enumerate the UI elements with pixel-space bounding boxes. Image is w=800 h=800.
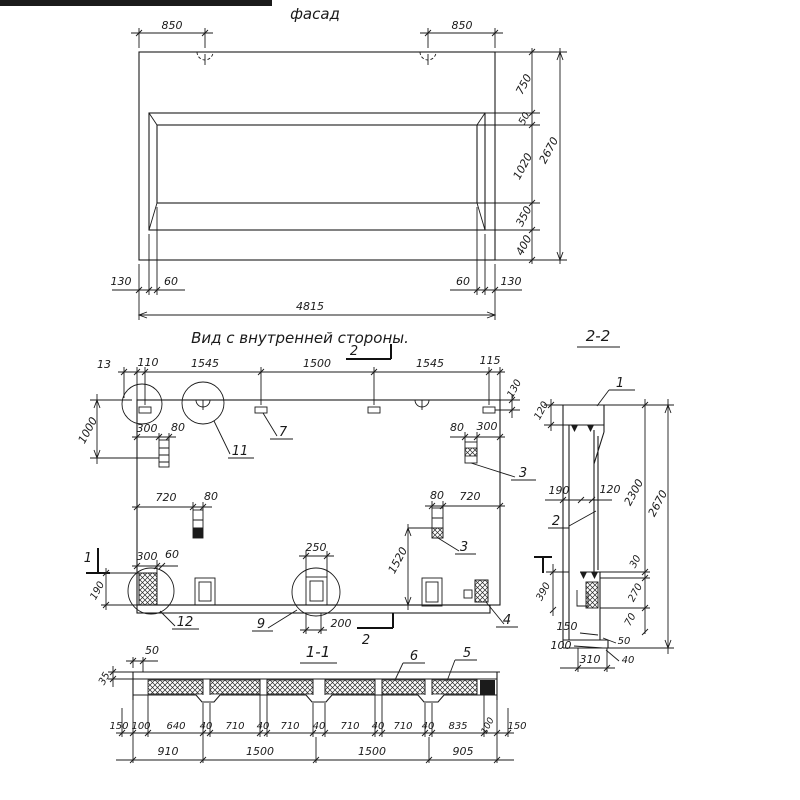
dim-row1-12: 835 [448,721,467,732]
dim-130-left: 130 [111,275,132,288]
dim-80-mid: 80 [204,490,218,503]
section-2-mark-bottom [357,613,393,628]
slot-4 [483,407,495,413]
callout-12: 12 [177,615,194,630]
dim-80-tr: 80 [450,421,464,434]
dim-130-inner: 130 [505,378,524,400]
dim-13: 13 [97,358,111,371]
dim-70: 70 [623,612,639,628]
dim-270: 270 [626,582,645,604]
dim-2670-sec: 2670 [646,488,671,519]
facade-title: фасад [290,5,340,23]
dim-line-2670 [557,48,563,264]
dim-row1-10: 710 [393,721,412,732]
facade-view: фасад 850 850 750 50 1020 350 400 2670 1… [111,5,568,320]
dim-200: 200 [331,617,352,630]
dim-115: 115 [480,354,501,367]
dim-row2-1: 1500 [246,745,274,758]
dim-line-50 [126,657,158,672]
dim-300-tr: 300 [477,420,498,433]
dim-line-1520 [405,524,434,610]
dim-120-top: 120 [532,400,551,422]
dim-line-190 [101,568,139,610]
dim-850-left: 850 [162,19,183,32]
dim-130-right: 130 [501,275,522,288]
callout-9: 9 [257,617,265,632]
insulation-block [210,680,260,694]
inner-view: Вид с внутренней стороны. 13 110 1545 15… [76,329,552,648]
dim-line-250 [299,551,334,577]
dim-35: 35 [97,671,113,687]
dim-2300: 2300 [622,477,647,508]
dim-row1-0: 150 [109,721,128,732]
dim-line-190-120 [545,497,612,503]
sec11-bottom-edge [133,695,497,702]
insulation-block [148,680,203,694]
dim-1000: 1000 [76,415,101,446]
dim-60-left: 60 [164,275,178,288]
dim-row1-6: 710 [280,721,299,732]
dim-50-foot: 50 [618,636,631,647]
section-1-1-title: 1-1 [306,643,331,661]
dim-row1-8: 710 [340,721,359,732]
dim-row1-11: 40 [422,721,435,732]
section-1-label-left: 1 [84,551,92,566]
stud-mid-anchor [193,528,203,538]
dim-line-top-chain [118,367,505,405]
dim-190: 190 [88,580,107,602]
dim-1545-a: 1545 [191,357,219,370]
dim-40-leader [606,650,619,661]
blueprint-page: фасад 850 850 750 50 1020 350 400 2670 1… [0,0,800,800]
stud-mid-cells [193,520,203,528]
callout-11: 11 [232,444,249,459]
dim-30: 30 [628,554,644,570]
dim-40-foot: 40 [622,655,635,666]
inner-panel-outline [137,400,500,605]
dim-300-upper: 300 [137,422,158,435]
u-block-2-inner [310,581,323,601]
stud-upper [159,440,169,467]
opening-reveal-diagonals [149,113,485,230]
dim-310: 310 [580,653,601,666]
stud-upper-cells [159,448,169,462]
dim-2670: 2670 [537,135,562,166]
callout-1: 1 [616,376,624,391]
callout-3b-leader [438,538,476,554]
section-2-label-top: 2 [350,344,358,359]
callout-2: 2 [552,514,560,529]
facade-opening-outer [149,113,485,230]
inner-view-title: Вид с внутренней стороны. [191,329,409,347]
dim-60-right: 60 [456,275,470,288]
dim-400: 400 [513,233,534,258]
dim-row2-3: 905 [453,745,474,758]
section-2-2: 2-2 120 190 120 2300 30 270 70 2670 390 … [532,327,674,672]
callout-3a: 3 [519,466,527,481]
dim-row1-7: 40 [313,721,326,732]
stud-mid-right-cells [432,518,443,528]
insulation-block [382,680,425,694]
dim-150-foot: 150 [557,620,578,633]
dim-100-foot: 100 [551,639,572,652]
slot-2 [255,407,267,413]
dim-80-mr: 80 [430,489,444,502]
section-2-2-title: 2-2 [586,327,611,345]
dim-60-bl: 60 [165,548,179,561]
dim-row2-0: 910 [158,745,179,758]
dim-row1-14: 150 [507,721,526,732]
dim-row1-1: 100 [131,721,150,732]
dim-120-mid: 120 [600,483,621,496]
dim-720-mid: 720 [156,491,177,504]
dim-1545-b: 1545 [416,357,444,370]
dim-50-sec11: 50 [145,644,159,657]
dim-row1-5: 40 [257,721,270,732]
dim-750: 750 [513,72,534,97]
callout-5-leader [447,660,477,681]
u-block-3-inner [426,582,438,602]
detail-circle-9 [292,568,340,616]
insulation-block [432,680,477,694]
dim-row1-3: 40 [200,721,213,732]
dim-row1-4: 710 [225,721,244,732]
dim-line-2670-sec [665,399,671,654]
dim-850-right: 850 [452,19,473,32]
end-anchor-block [480,680,495,695]
slot-3 [368,407,380,413]
dim-150-leader [580,633,598,635]
callout-1-leader [597,390,635,406]
dim-720-mr: 720 [460,490,481,503]
dim-row2-2: 1500 [358,745,386,758]
dim-250: 250 [306,541,327,554]
section-1-mark-right [534,557,552,573]
block-c4-hatch [475,580,488,602]
u-block-1-inner [199,582,211,601]
slot-1 [139,407,151,413]
section-1-1: 1-1 6 5 50 35 150 100 640 40 710 40 710 … [97,643,527,763]
section-2-label-bottom: 2 [362,633,370,648]
stud-top-right-hatch [465,448,477,456]
dim-1500: 1500 [303,357,331,370]
callout-3b: 3 [460,540,468,555]
callout-6: 6 [410,649,418,664]
dim-190-mid: 190 [549,484,570,497]
insulation-block [325,680,375,694]
facade-opening-inner [157,125,477,203]
block-bl-hatch [139,573,157,605]
dim-line-2300-chain [600,399,674,648]
block-c4-small [464,590,472,598]
callout-7: 7 [279,425,288,440]
callout-5: 5 [463,646,471,661]
dim-row1-9: 40 [372,721,385,732]
dim-110: 110 [138,356,159,369]
dim-350: 350 [513,204,534,229]
insulation-block [267,680,313,694]
detail-circle-corner [122,384,162,424]
dim-80-upper: 80 [171,421,185,434]
section-2-2-outline [563,405,608,648]
dim-300-bl: 300 [137,550,158,563]
dim-1020: 1020 [511,151,536,182]
dim-4815: 4815 [296,300,324,313]
panel-drawing: фасад 850 850 750 50 1020 350 400 2670 1… [0,0,800,800]
scan-artifact-bar [0,0,272,6]
dim-1520: 1520 [386,545,411,576]
dim-390: 390 [534,581,553,603]
stud-mid-right-hatch [432,528,443,538]
facade-panel-outline [139,52,495,260]
callout-4: 4 [503,613,511,628]
dim-row1-2: 640 [166,721,185,732]
